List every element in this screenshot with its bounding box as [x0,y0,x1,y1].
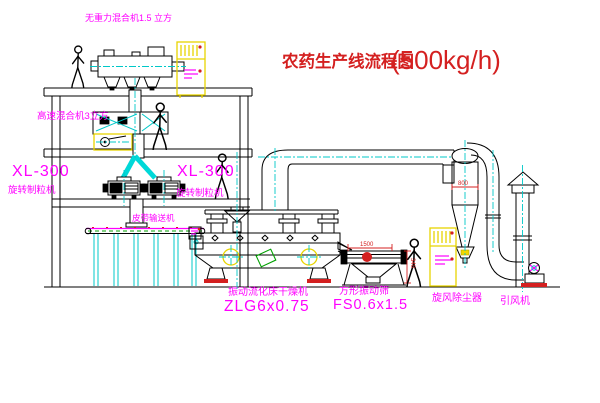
operator-figure-1 [72,46,84,87]
cad-drawing-canvas: 无重力混合机1.5 立方 高速混合机3立方 XL-300 旋转制粒机 XL-30… [0,0,600,403]
label-high-speed-mixer: 高速混合机3立方 [37,110,109,122]
label-screen-name: 方形振动筛 [339,284,389,297]
label-belt-conveyor: 皮带输送机 [132,213,175,223]
vibrating-screen [338,242,411,285]
label-granulator-right-model: XL-300 [177,163,235,180]
y-chute [123,156,155,178]
label-granulator-left-name: 旋转制粒机 [8,184,56,196]
label-fan: 引风机 [500,294,530,307]
label-cyclone: 旋风除尘器 [432,291,482,304]
zero-gravity-mixer [90,47,186,112]
label-screen-model: FS0.6x1.5 [333,297,408,313]
drawing-title-capacity: (500kg/h) [391,45,501,75]
cyclone-fan-duct [467,143,524,280]
process-flow-diagram: 无重力混合机1.5 立方 高速混合机3立方 XL-300 旋转制粒机 XL-30… [0,0,600,403]
label-granulator-left-model: XL-300 [12,163,70,180]
control-cabinet-right [430,228,456,286]
fluid-bed-dryer [189,210,352,283]
belt-conveyor [85,228,205,287]
label-granulator-right-name: 旋转制粒机 [176,187,224,199]
exhaust-duct [258,148,458,212]
label-dryer-model: ZLG6x0.75 [224,298,310,315]
label-dryer-name: 振动流化床干燥机 [228,285,308,298]
dim-screen-height: 340 [409,258,415,269]
induced-draft-fan [521,263,547,288]
label-top-mixer: 无重力混合机1.5 立方 [85,12,172,23]
dim-screen-length: 1500 [360,242,374,248]
dim-cyclone: 800 [458,181,469,187]
